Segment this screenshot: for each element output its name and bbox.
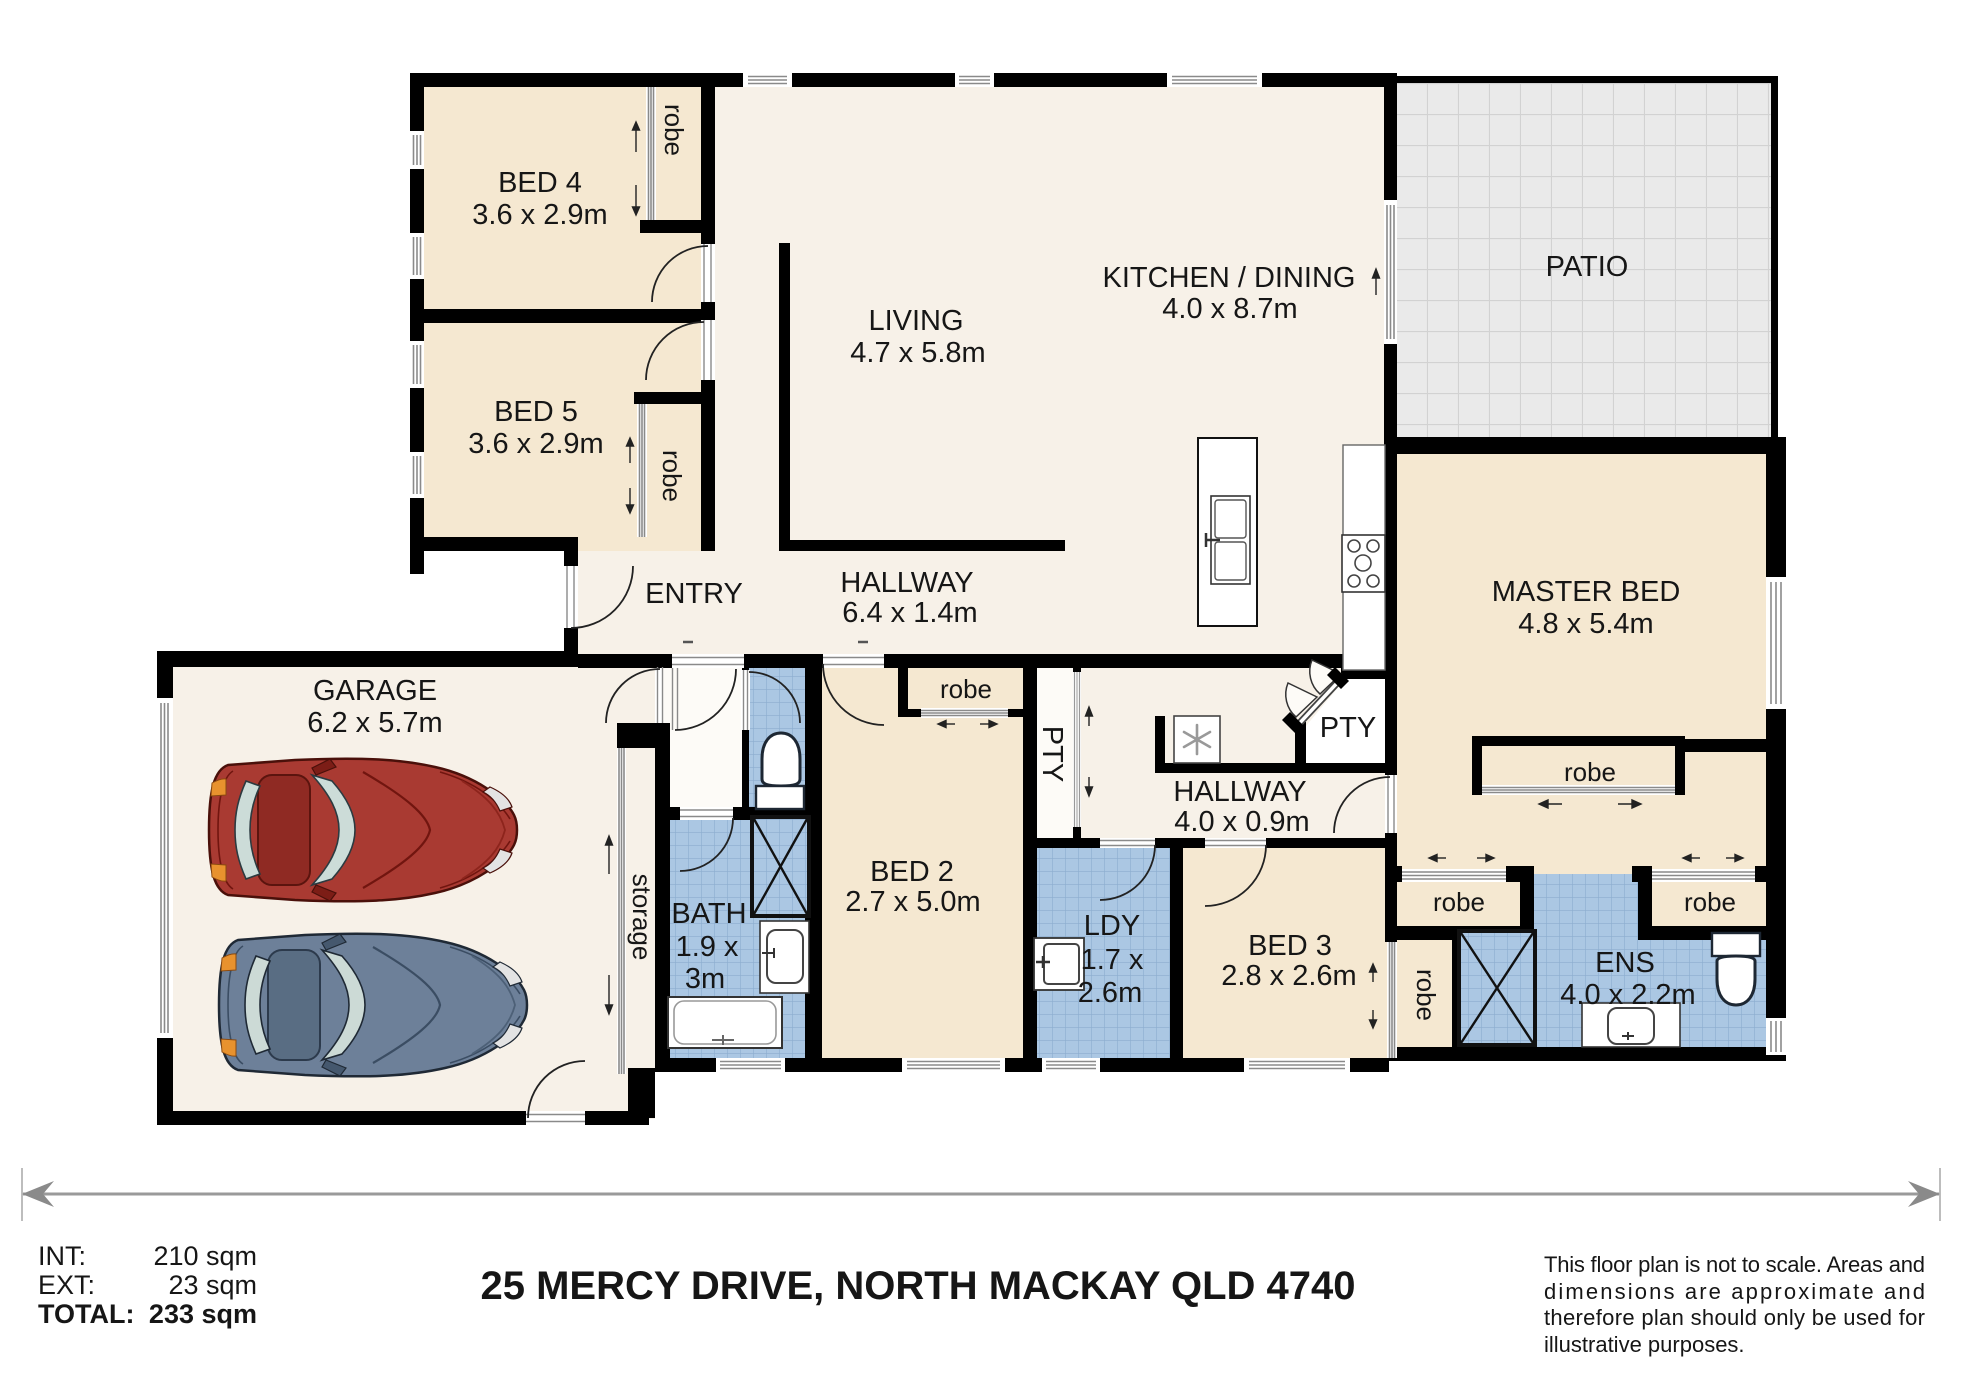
svg-text:23 sqm: 23 sqm: [168, 1270, 257, 1300]
svg-text:MASTER BED: MASTER BED: [1492, 576, 1681, 608]
svg-text:INT:: INT:: [38, 1241, 86, 1271]
svg-text:LIVING: LIVING: [868, 305, 963, 337]
svg-text:4.8 x 5.4m: 4.8 x 5.4m: [1518, 608, 1653, 640]
svg-text:6.2 x 5.7m: 6.2 x 5.7m: [307, 707, 442, 739]
svg-text:1.7 x: 1.7 x: [1081, 944, 1144, 976]
svg-text:HALLWAY: HALLWAY: [1173, 776, 1306, 808]
svg-text:2.8 x 2.6m: 2.8 x 2.6m: [1221, 960, 1356, 992]
svg-text:PATIO: PATIO: [1546, 251, 1629, 283]
svg-text:GARAGE: GARAGE: [313, 675, 437, 707]
svg-text:This floor plan is not to scal: This floor plan is not to scale. Areas a…: [1544, 1252, 1925, 1277]
svg-text:robe: robe: [940, 674, 992, 704]
svg-text:6.4 x 1.4m: 6.4 x 1.4m: [842, 597, 977, 629]
svg-text:3m: 3m: [685, 963, 725, 995]
svg-text:TOTAL:: TOTAL:: [38, 1299, 134, 1329]
svg-text:BED 3: BED 3: [1248, 930, 1332, 962]
svg-text:4.0 x 8.7m: 4.0 x 8.7m: [1162, 293, 1297, 325]
svg-text:BED 2: BED 2: [870, 856, 954, 888]
svg-text:PTY: PTY: [1036, 726, 1068, 782]
svg-text:illustrative purposes.: illustrative purposes.: [1544, 1332, 1745, 1357]
svg-text:ENS: ENS: [1595, 947, 1655, 979]
svg-text:therefore plan should only be: therefore plan should only be used for: [1544, 1305, 1925, 1330]
svg-text:4.0 x 2.2m: 4.0 x 2.2m: [1560, 979, 1695, 1011]
svg-text:2.6m: 2.6m: [1078, 977, 1142, 1009]
svg-text:2.7 x 5.0m: 2.7 x 5.0m: [845, 886, 980, 918]
svg-text:233 sqm: 233 sqm: [149, 1299, 257, 1329]
svg-text:1.9 x: 1.9 x: [676, 931, 739, 963]
svg-text:BED 4: BED 4: [498, 167, 582, 199]
svg-text:210 sqm: 210 sqm: [153, 1241, 257, 1271]
svg-text:robe: robe: [1684, 887, 1736, 917]
svg-text:LDY: LDY: [1084, 910, 1140, 942]
svg-text:ENTRY: ENTRY: [645, 578, 743, 610]
svg-text:4.7 x 5.8m: 4.7 x 5.8m: [850, 337, 985, 369]
svg-text:BED 5: BED 5: [494, 396, 578, 428]
svg-text:dimensions are approximate and: dimensions are approximate and: [1544, 1279, 1925, 1304]
svg-text:storage: storage: [627, 874, 657, 961]
svg-text:PTY: PTY: [1320, 712, 1376, 744]
svg-text:BATH: BATH: [671, 898, 746, 930]
svg-text:robe: robe: [1433, 887, 1485, 917]
svg-text:3.6 x 2.9m: 3.6 x 2.9m: [472, 199, 607, 231]
svg-text:robe: robe: [1564, 757, 1616, 787]
svg-text:robe: robe: [659, 104, 689, 156]
svg-text:robe: robe: [657, 450, 687, 502]
svg-text:25 MERCY DRIVE, NORTH MACKAY Q: 25 MERCY DRIVE, NORTH MACKAY QLD 4740: [480, 1264, 1355, 1308]
svg-text:3.6 x 2.9m: 3.6 x 2.9m: [468, 428, 603, 460]
svg-text:4.0 x 0.9m: 4.0 x 0.9m: [1174, 806, 1309, 838]
svg-text:robe: robe: [1411, 969, 1441, 1021]
svg-text:EXT:: EXT:: [38, 1270, 95, 1300]
svg-text:KITCHEN / DINING: KITCHEN / DINING: [1103, 262, 1356, 294]
svg-text:HALLWAY: HALLWAY: [840, 567, 973, 599]
